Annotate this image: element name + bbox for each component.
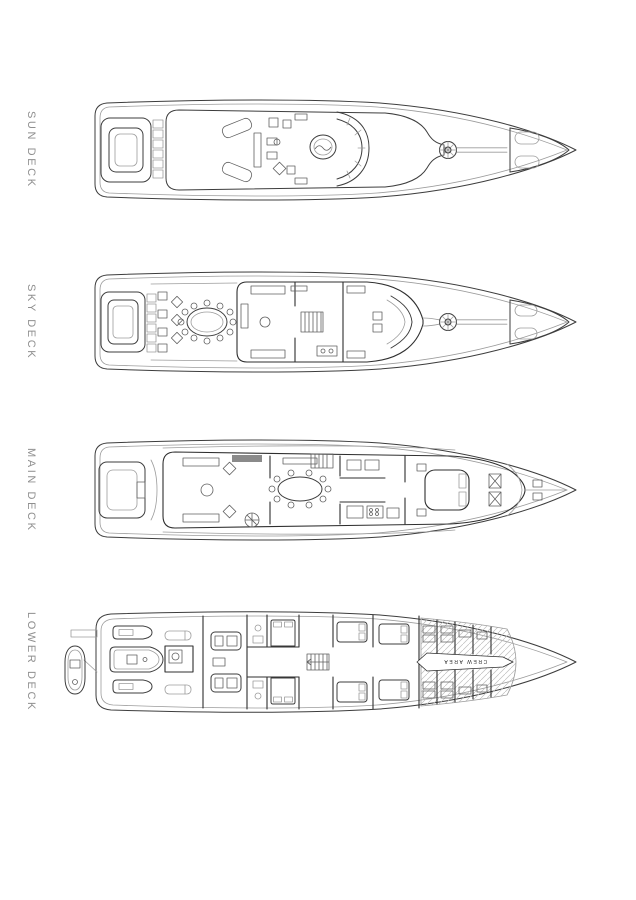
- jetski: [113, 626, 152, 639]
- sky-deck-label: SKY DECK: [20, 262, 42, 382]
- dining-room: [269, 458, 331, 508]
- alfresco-dining-table: [178, 300, 236, 344]
- windlass: [440, 142, 457, 159]
- lobby-stairs: [307, 654, 329, 670]
- bar-counter: [254, 133, 261, 167]
- neck-lines: [423, 318, 440, 326]
- walkway-centerline: [457, 148, 507, 152]
- main-salon: [183, 455, 262, 527]
- garage-lounger: [165, 631, 191, 640]
- helm-console: [391, 296, 412, 348]
- wardrobe: [489, 474, 501, 506]
- hull: [95, 440, 576, 540]
- workshop: [165, 646, 193, 672]
- main-deck-plan: [55, 430, 600, 550]
- guest-bed-aft-bottom: [271, 678, 295, 704]
- bow-bulwark: [510, 300, 569, 344]
- side-tender: [65, 630, 97, 694]
- wheelhouse: [343, 282, 423, 362]
- stern-mast-structure: [101, 118, 151, 182]
- skylounge: [237, 282, 343, 362]
- boarding-steps: [147, 294, 156, 352]
- bow-sunpads: [515, 132, 539, 168]
- main-deck-label: MAIN DECK: [20, 430, 42, 550]
- deck-row-lower: LOWER DECK: [0, 602, 636, 722]
- spiral-stairs: [245, 513, 259, 527]
- windlass: [440, 314, 457, 331]
- stern-stairs-structure: [99, 460, 157, 520]
- aft-deck-bulwark: [151, 283, 237, 361]
- superstructure: [163, 452, 525, 528]
- guest-bed-aft-top: [271, 620, 295, 646]
- sun-deck-plan: [55, 90, 600, 210]
- bow-bulwark: [510, 128, 569, 172]
- guest-bed-fwd-top: [379, 624, 409, 644]
- windshield: [507, 464, 522, 516]
- stern-structure: [101, 292, 145, 352]
- crew-area: CREW AREA: [417, 618, 516, 706]
- jacuzzi: [310, 135, 336, 159]
- guest-cabins: [247, 615, 409, 709]
- deck-row-main: MAIN DECK: [0, 430, 636, 550]
- deck-chairs: [267, 114, 307, 184]
- boarding-steps: [153, 120, 163, 178]
- aft-deck-armchairs: [158, 292, 183, 352]
- deck-row-sun: SUN DECK: [0, 90, 636, 210]
- corridor: [340, 478, 385, 502]
- yacht-deck-plans-page: SUN DECK: [0, 0, 636, 900]
- foyer-stairs: [311, 454, 333, 468]
- deck-row-sky: SKY DECK: [0, 262, 636, 382]
- sky-deck-plan: [55, 262, 600, 382]
- sideboard: [232, 455, 262, 462]
- side-decks: [163, 446, 455, 534]
- hull: [95, 272, 576, 372]
- crew-area-annotation: CREW AREA: [443, 658, 487, 664]
- engine-room: [211, 632, 241, 692]
- sun-loungers: [221, 117, 253, 183]
- walkway-centerline: [457, 320, 507, 324]
- sun-deck-label: SUN DECK: [20, 90, 42, 210]
- tender: [110, 647, 163, 672]
- owner-bed: [425, 470, 469, 510]
- owner-stateroom: [417, 464, 522, 516]
- lower-deck-plan: CREW AREA: [55, 602, 600, 722]
- guest-bed-mid-top: [337, 622, 367, 642]
- lower-deck-label: LOWER DECK: [20, 602, 42, 722]
- curved-seating: [337, 112, 369, 186]
- guest-bed-mid-bottom: [337, 682, 367, 702]
- guest-bed-fwd-bottom: [379, 680, 409, 700]
- tender-garage: [110, 626, 193, 694]
- stairs: [301, 312, 323, 332]
- galley: [347, 460, 399, 518]
